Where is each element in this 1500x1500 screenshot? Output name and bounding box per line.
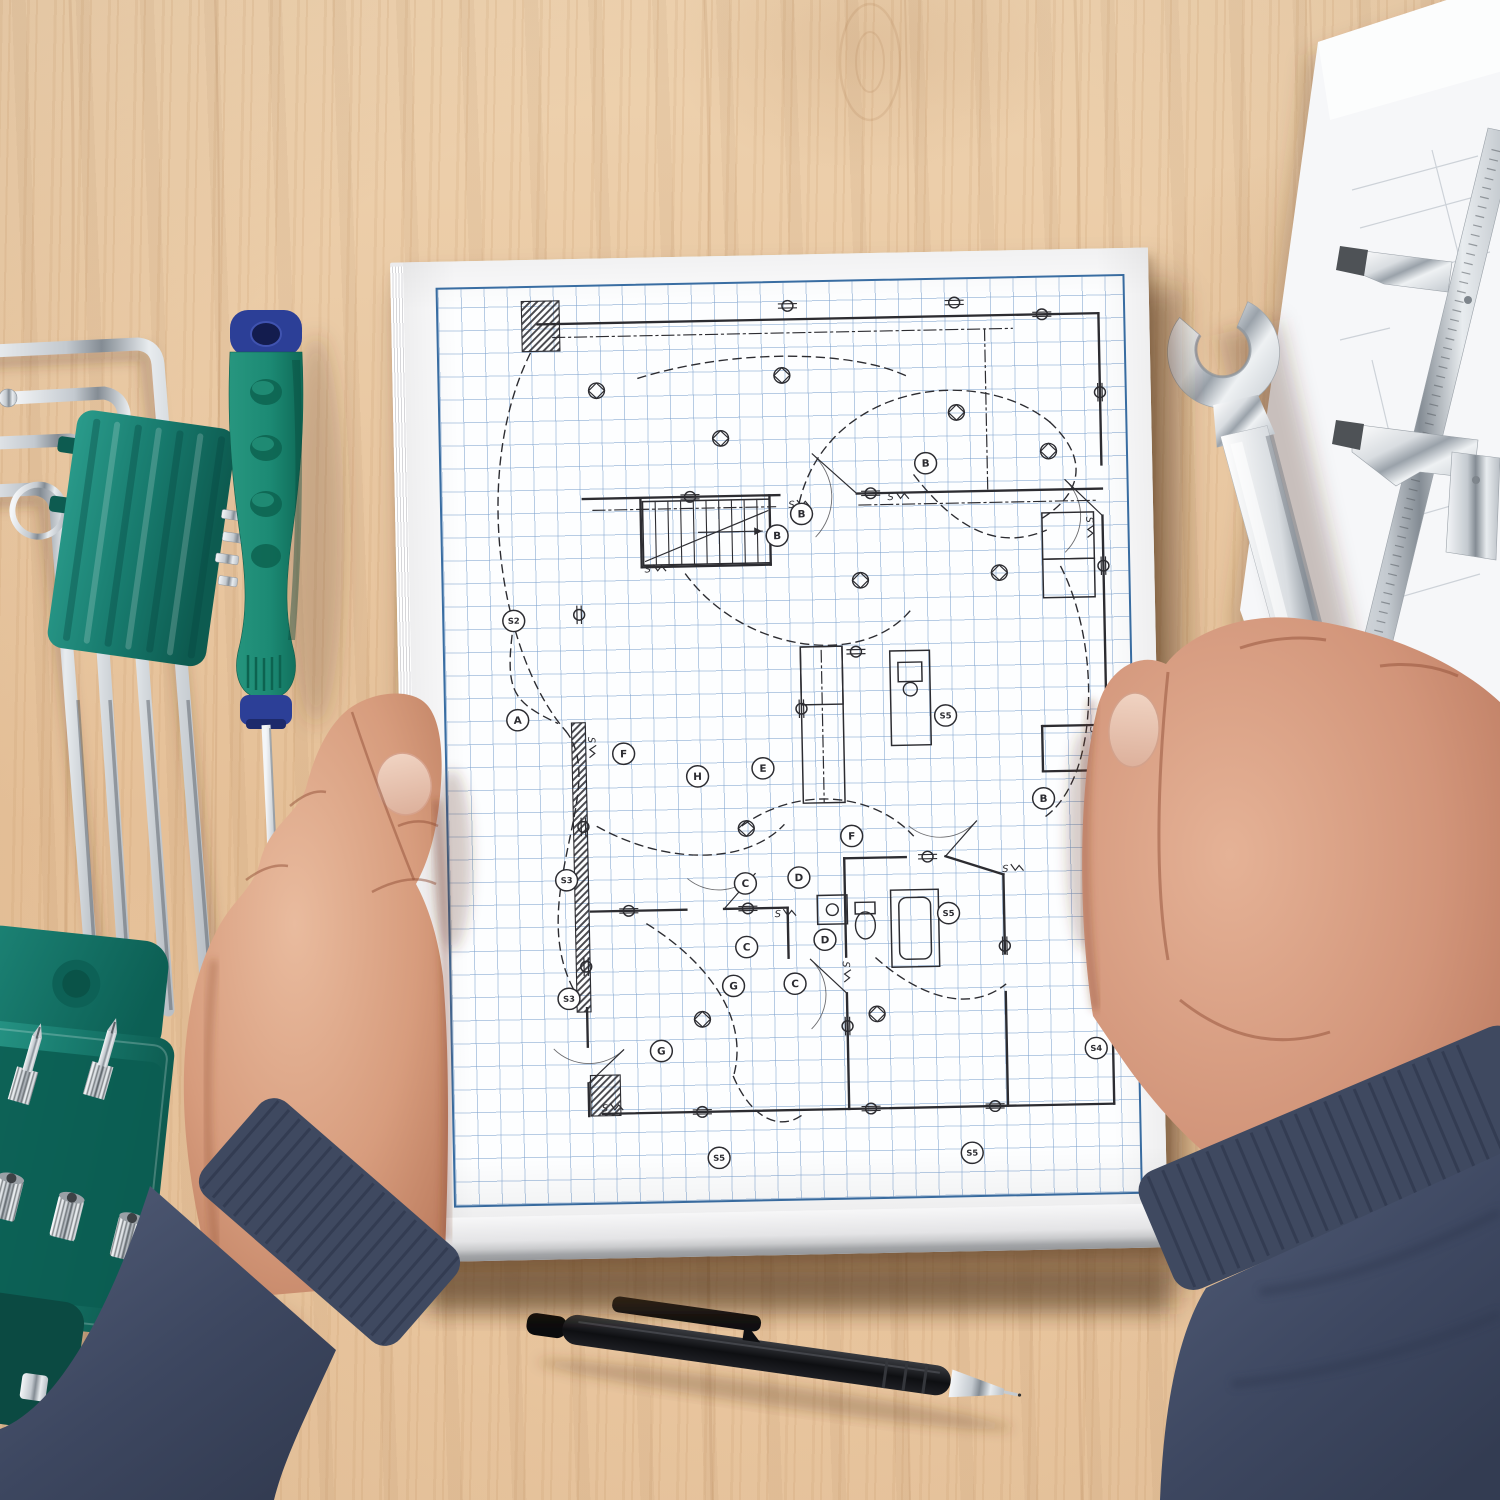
hands-layer [0, 0, 1500, 1500]
workbench-scene: 17 [0, 0, 1500, 1500]
right-hand [1082, 617, 1500, 1500]
left-hand [0, 693, 468, 1500]
